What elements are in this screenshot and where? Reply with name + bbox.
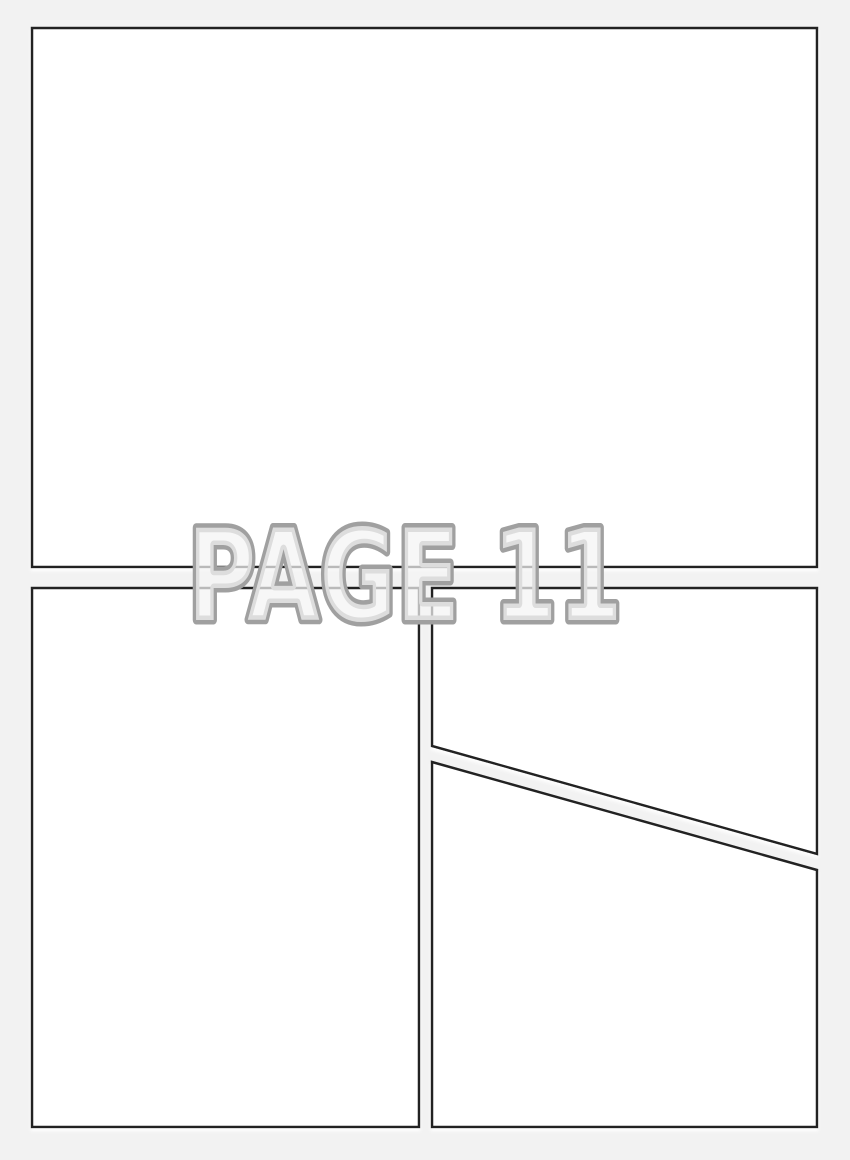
page-number-label: PAGE 11 bbox=[188, 502, 623, 650]
comic-page-template: PAGE 11 bbox=[0, 0, 850, 1160]
comic-panel-top bbox=[32, 28, 817, 567]
comic-panel-bottom-left bbox=[32, 588, 419, 1127]
comic-page-canvas: PAGE 11 bbox=[0, 0, 850, 1160]
